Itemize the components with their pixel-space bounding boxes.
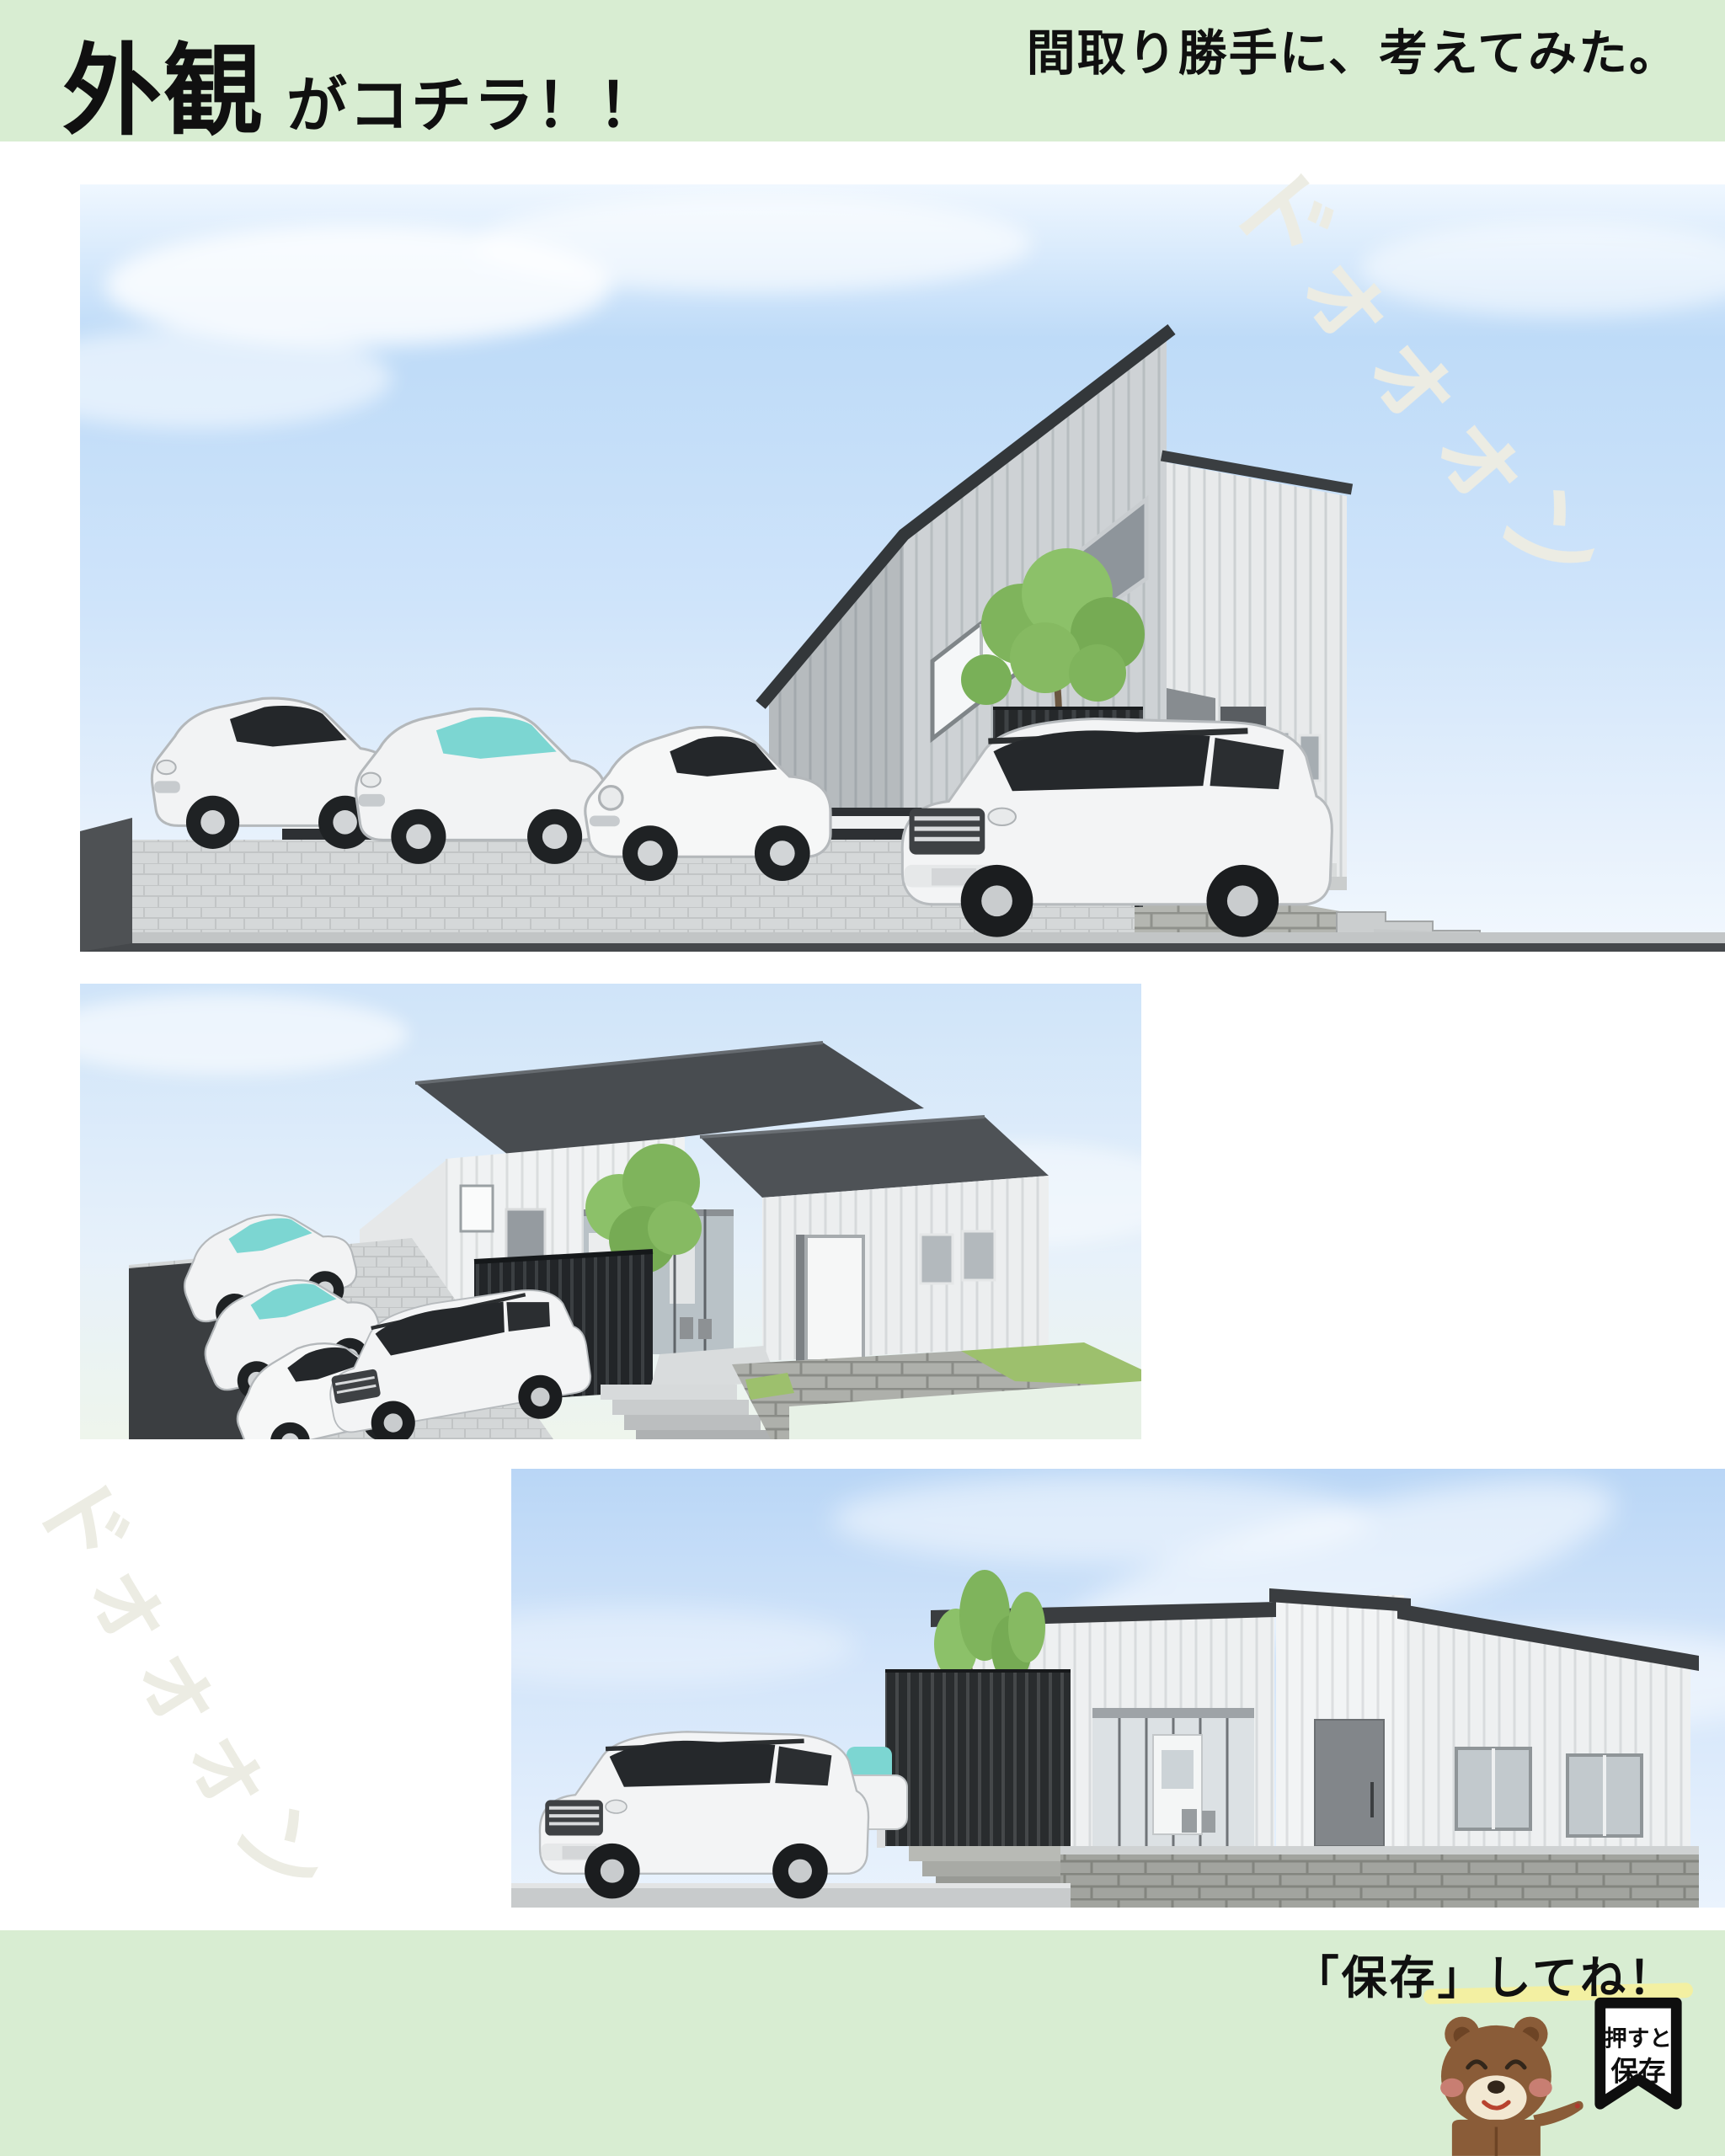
bear-cheek bbox=[1529, 2079, 1552, 2097]
exterior-render-1-image bbox=[80, 184, 1725, 952]
window bbox=[461, 1186, 493, 1231]
stone-base-wall bbox=[1052, 1854, 1699, 1908]
window bbox=[506, 1209, 545, 1262]
bookmark-label-2: 保存 bbox=[1611, 2057, 1666, 2087]
black-slat-fence bbox=[885, 1669, 1071, 1846]
bookmark-label-1: 押すと bbox=[1605, 2025, 1672, 2051]
render-2-aerial-view bbox=[80, 984, 1141, 1439]
driveway bbox=[80, 818, 132, 952]
page-title-sub: がコチラ！！ bbox=[286, 76, 660, 141]
road bbox=[80, 943, 1725, 952]
exterior-render-2-image bbox=[80, 984, 1141, 1439]
window bbox=[963, 1231, 995, 1280]
page-title: 外観 がコチラ！！ bbox=[62, 0, 660, 152]
render-3-street-elevation bbox=[511, 1469, 1725, 1908]
sidewalk bbox=[80, 932, 1725, 943]
bookmark-save-icon[interactable]: 押すと 保存 bbox=[1589, 1994, 1688, 2136]
render-1-front-exterior bbox=[80, 184, 1725, 952]
entry-door bbox=[806, 1236, 863, 1361]
window bbox=[1567, 1755, 1642, 1836]
header-note: 間取り勝手に、考えてみた。 bbox=[1027, 13, 1680, 84]
bear-nose bbox=[1487, 2080, 1505, 2093]
bookmark-shape[interactable] bbox=[1600, 2003, 1676, 2104]
exterior-render-3-image bbox=[511, 1469, 1725, 1908]
bear-cheek bbox=[1440, 2079, 1464, 2097]
page: { "page": { "background": "#ffffff", "ba… bbox=[0, 0, 1725, 2156]
page-title-main: 外観 bbox=[62, 42, 264, 141]
window bbox=[1456, 1748, 1530, 1829]
window bbox=[921, 1235, 953, 1283]
sfx-doon-bottom-left: ドォォォン bbox=[21, 1460, 344, 1918]
glass-doors bbox=[1092, 1718, 1254, 1846]
bear-mascot bbox=[1420, 2004, 1587, 2156]
